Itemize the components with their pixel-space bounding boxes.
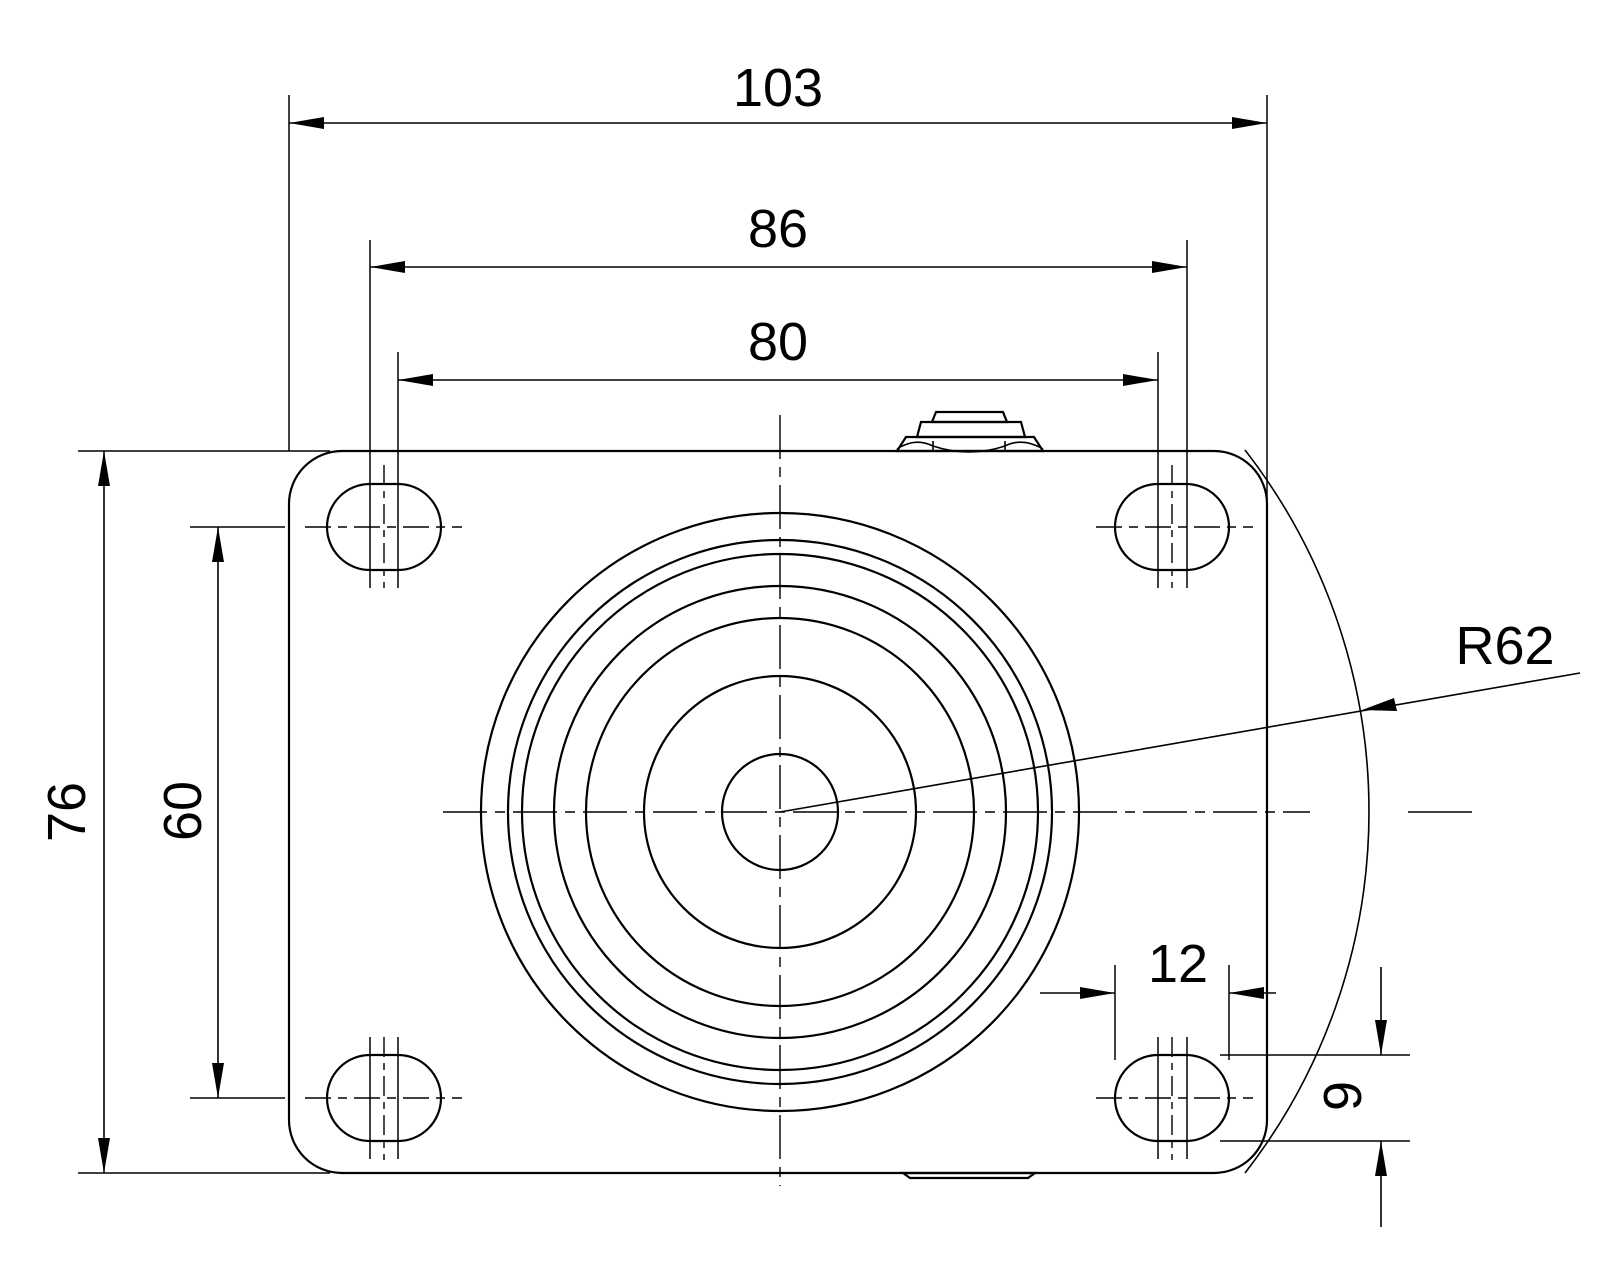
arrow-80-left bbox=[398, 374, 433, 386]
dimension-labels: 103 86 80 76 60 12 9 R62 bbox=[37, 58, 1555, 1111]
nut-collar bbox=[917, 422, 1025, 437]
arrow-9-top bbox=[1375, 1020, 1387, 1055]
arrow-103-right bbox=[1232, 117, 1267, 129]
arrow-86-left bbox=[370, 261, 405, 273]
nut-cap bbox=[932, 412, 1007, 422]
arrow-86-right bbox=[1152, 261, 1187, 273]
arrow-60-bottom bbox=[212, 1063, 224, 1098]
extension-lines bbox=[78, 95, 1410, 1173]
dimension-text-76: 76 bbox=[37, 782, 97, 842]
dimension-text-80: 80 bbox=[748, 312, 808, 372]
arrow-12-right bbox=[1229, 987, 1264, 999]
arrow-80-right bbox=[1123, 374, 1158, 386]
dimension-text-9: 9 bbox=[1313, 1081, 1373, 1111]
arrow-76-top bbox=[98, 451, 110, 486]
drawing-sheet: 103 86 80 76 60 12 9 R62 bbox=[0, 0, 1600, 1280]
arrow-60-top bbox=[212, 527, 224, 562]
dimension-text-60: 60 bbox=[153, 781, 213, 841]
caster-top-view-drawing: 103 86 80 76 60 12 9 R62 bbox=[0, 0, 1600, 1280]
radius-leader-r62 bbox=[780, 673, 1580, 812]
arrow-12-left bbox=[1080, 987, 1115, 999]
dimension-text-12: 12 bbox=[1148, 934, 1208, 994]
nut-hex-base bbox=[897, 437, 1043, 451]
arrowheads bbox=[98, 117, 1397, 1176]
bottom-fastener-sliver bbox=[903, 1173, 1035, 1178]
hex-nut-profile bbox=[897, 412, 1043, 452]
dimension-text-86: 86 bbox=[748, 199, 808, 259]
arrow-76-bottom bbox=[98, 1138, 110, 1173]
arrow-9-bottom bbox=[1375, 1141, 1387, 1176]
dimension-text-103: 103 bbox=[733, 58, 823, 118]
dimension-text-r62: R62 bbox=[1455, 616, 1554, 676]
arrow-103-left bbox=[289, 117, 324, 129]
arrow-r62 bbox=[1362, 698, 1397, 711]
